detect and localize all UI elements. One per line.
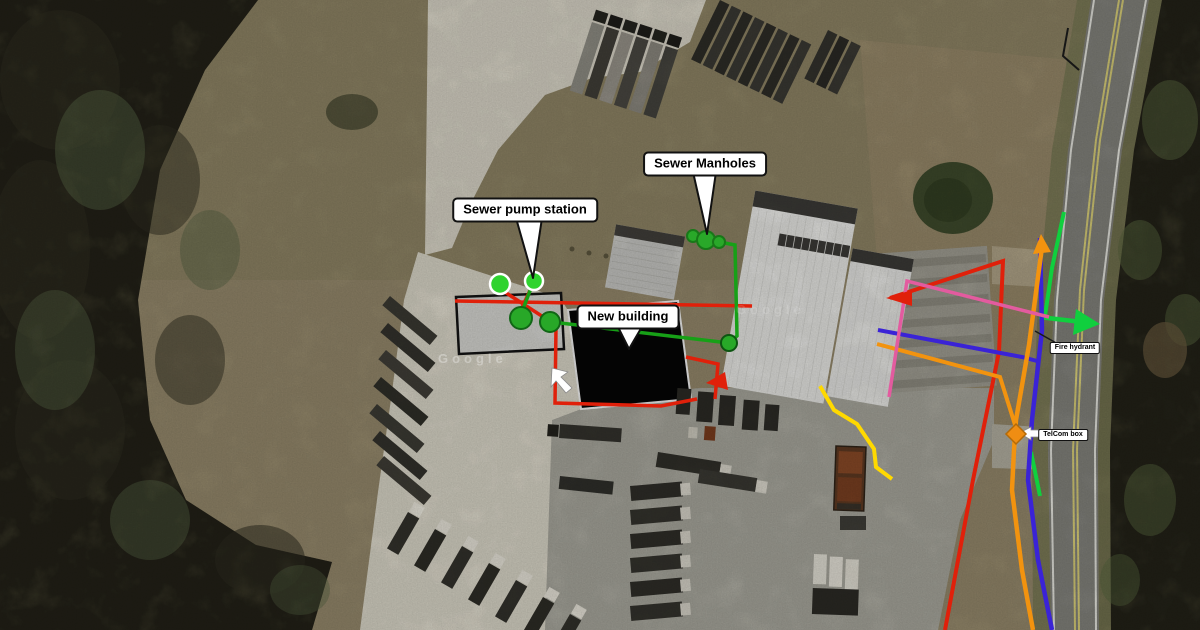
pump-station-upper-markers — [490, 274, 510, 294]
orange-service-line — [877, 344, 1016, 428]
pump-station-main-markers — [510, 307, 532, 329]
red-arrow-west — [886, 290, 912, 306]
label-sewer-pump-station: Sewer pump station — [452, 198, 598, 223]
label-sewer-manholes: Sewer Manholes — [643, 152, 767, 177]
yellow-line — [820, 386, 892, 479]
building-connection-marker — [721, 335, 737, 351]
green-roadside-line-upper — [1045, 212, 1064, 316]
green-roadside-line-lower — [1031, 452, 1040, 496]
map-canvas: Google Google Sewer Manholes Sewer pump … — [0, 0, 1200, 630]
sewer-manhole-markers — [713, 236, 725, 248]
green-arrow-head — [1073, 309, 1100, 335]
sewer-manholes-tail — [693, 172, 716, 234]
blue-service-line — [878, 330, 1037, 361]
telcom-box-marker — [1006, 424, 1026, 444]
green-sewer-manhole-line — [709, 240, 737, 342]
label-fire-hydrant: Fire hydrant — [1050, 342, 1100, 354]
red-line-building-east — [686, 357, 718, 399]
sewer-pump-station-tail — [516, 218, 542, 278]
pump-station-main-markers — [540, 312, 560, 332]
label-telcom-box: TelCom box — [1038, 429, 1088, 441]
orange-arrow-head — [1033, 234, 1051, 254]
red-main-road-line — [890, 261, 1003, 630]
label-new-building: New building — [577, 305, 680, 330]
